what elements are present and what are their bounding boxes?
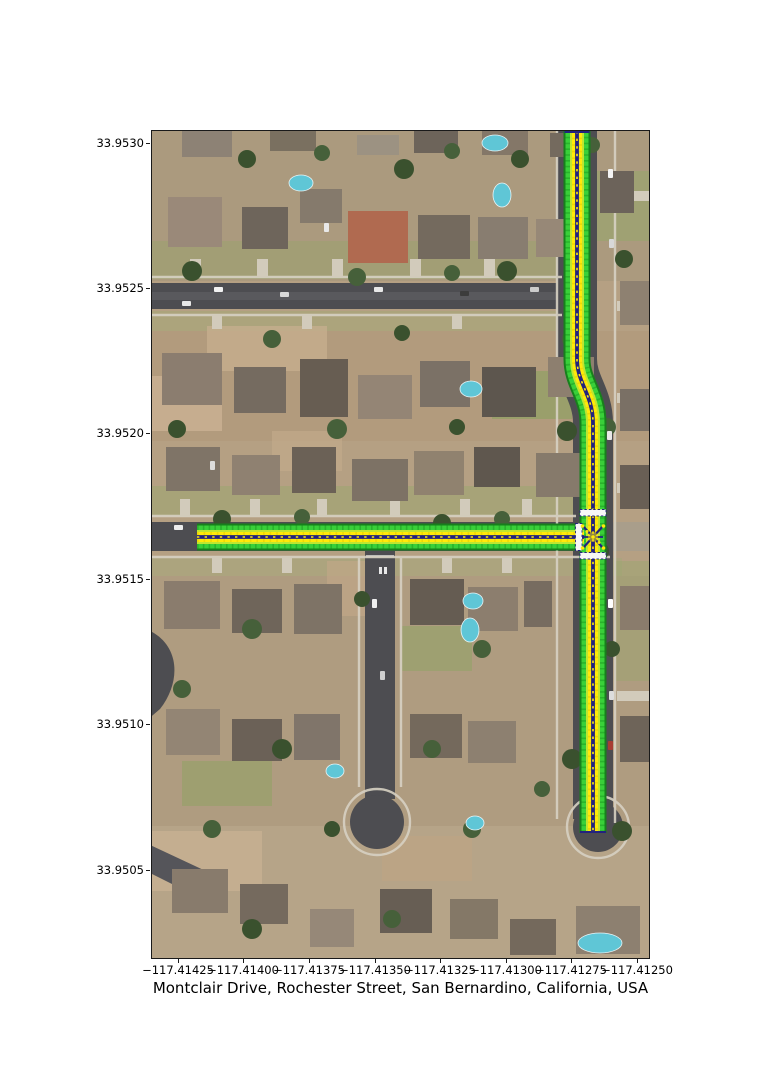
x-axis-tick-label: −117.41275 — [535, 963, 607, 977]
y-axis-tick-label: 33.9515 — [56, 572, 144, 586]
x-axis-tick-label: −117.41300 — [470, 963, 542, 977]
x-axis-tick-label: −117.41350 — [339, 963, 411, 977]
y-axis-tick — [146, 724, 150, 725]
x-axis-tick-label: −117.41425 — [142, 963, 214, 977]
y-axis-tick — [146, 870, 150, 871]
y-axis-tick-label: 33.9530 — [56, 136, 144, 150]
matplotlib-figure: 33.9530 33.9525 33.9520 33.9515 33.9510 … — [0, 0, 781, 1080]
x-axis-tick-label: −117.41400 — [207, 963, 279, 977]
stop-bar-north — [580, 510, 606, 517]
stop-bar-west — [576, 524, 583, 551]
figure-title: Montclair Drive, Rochester Street, San B… — [151, 979, 650, 998]
x-axis-tick-label: −117.41325 — [404, 963, 476, 977]
y-axis-tick-label: 33.9505 — [56, 863, 144, 877]
y-axis-tick — [146, 579, 150, 580]
satellite-imagery — [152, 131, 650, 959]
y-axis-tick-label: 33.9525 — [56, 281, 144, 295]
y-axis-tick-label: 33.9520 — [56, 426, 144, 440]
x-axis-tick-label: −117.41250 — [601, 963, 673, 977]
y-axis-tick — [146, 433, 150, 434]
y-axis-tick — [146, 288, 150, 289]
y-axis-tick — [146, 143, 150, 144]
x-axis-tick-label: −117.41375 — [273, 963, 345, 977]
stop-bar-south — [580, 553, 606, 560]
y-axis-tick-label: 33.9510 — [56, 717, 144, 731]
map-plot-area — [151, 130, 650, 959]
